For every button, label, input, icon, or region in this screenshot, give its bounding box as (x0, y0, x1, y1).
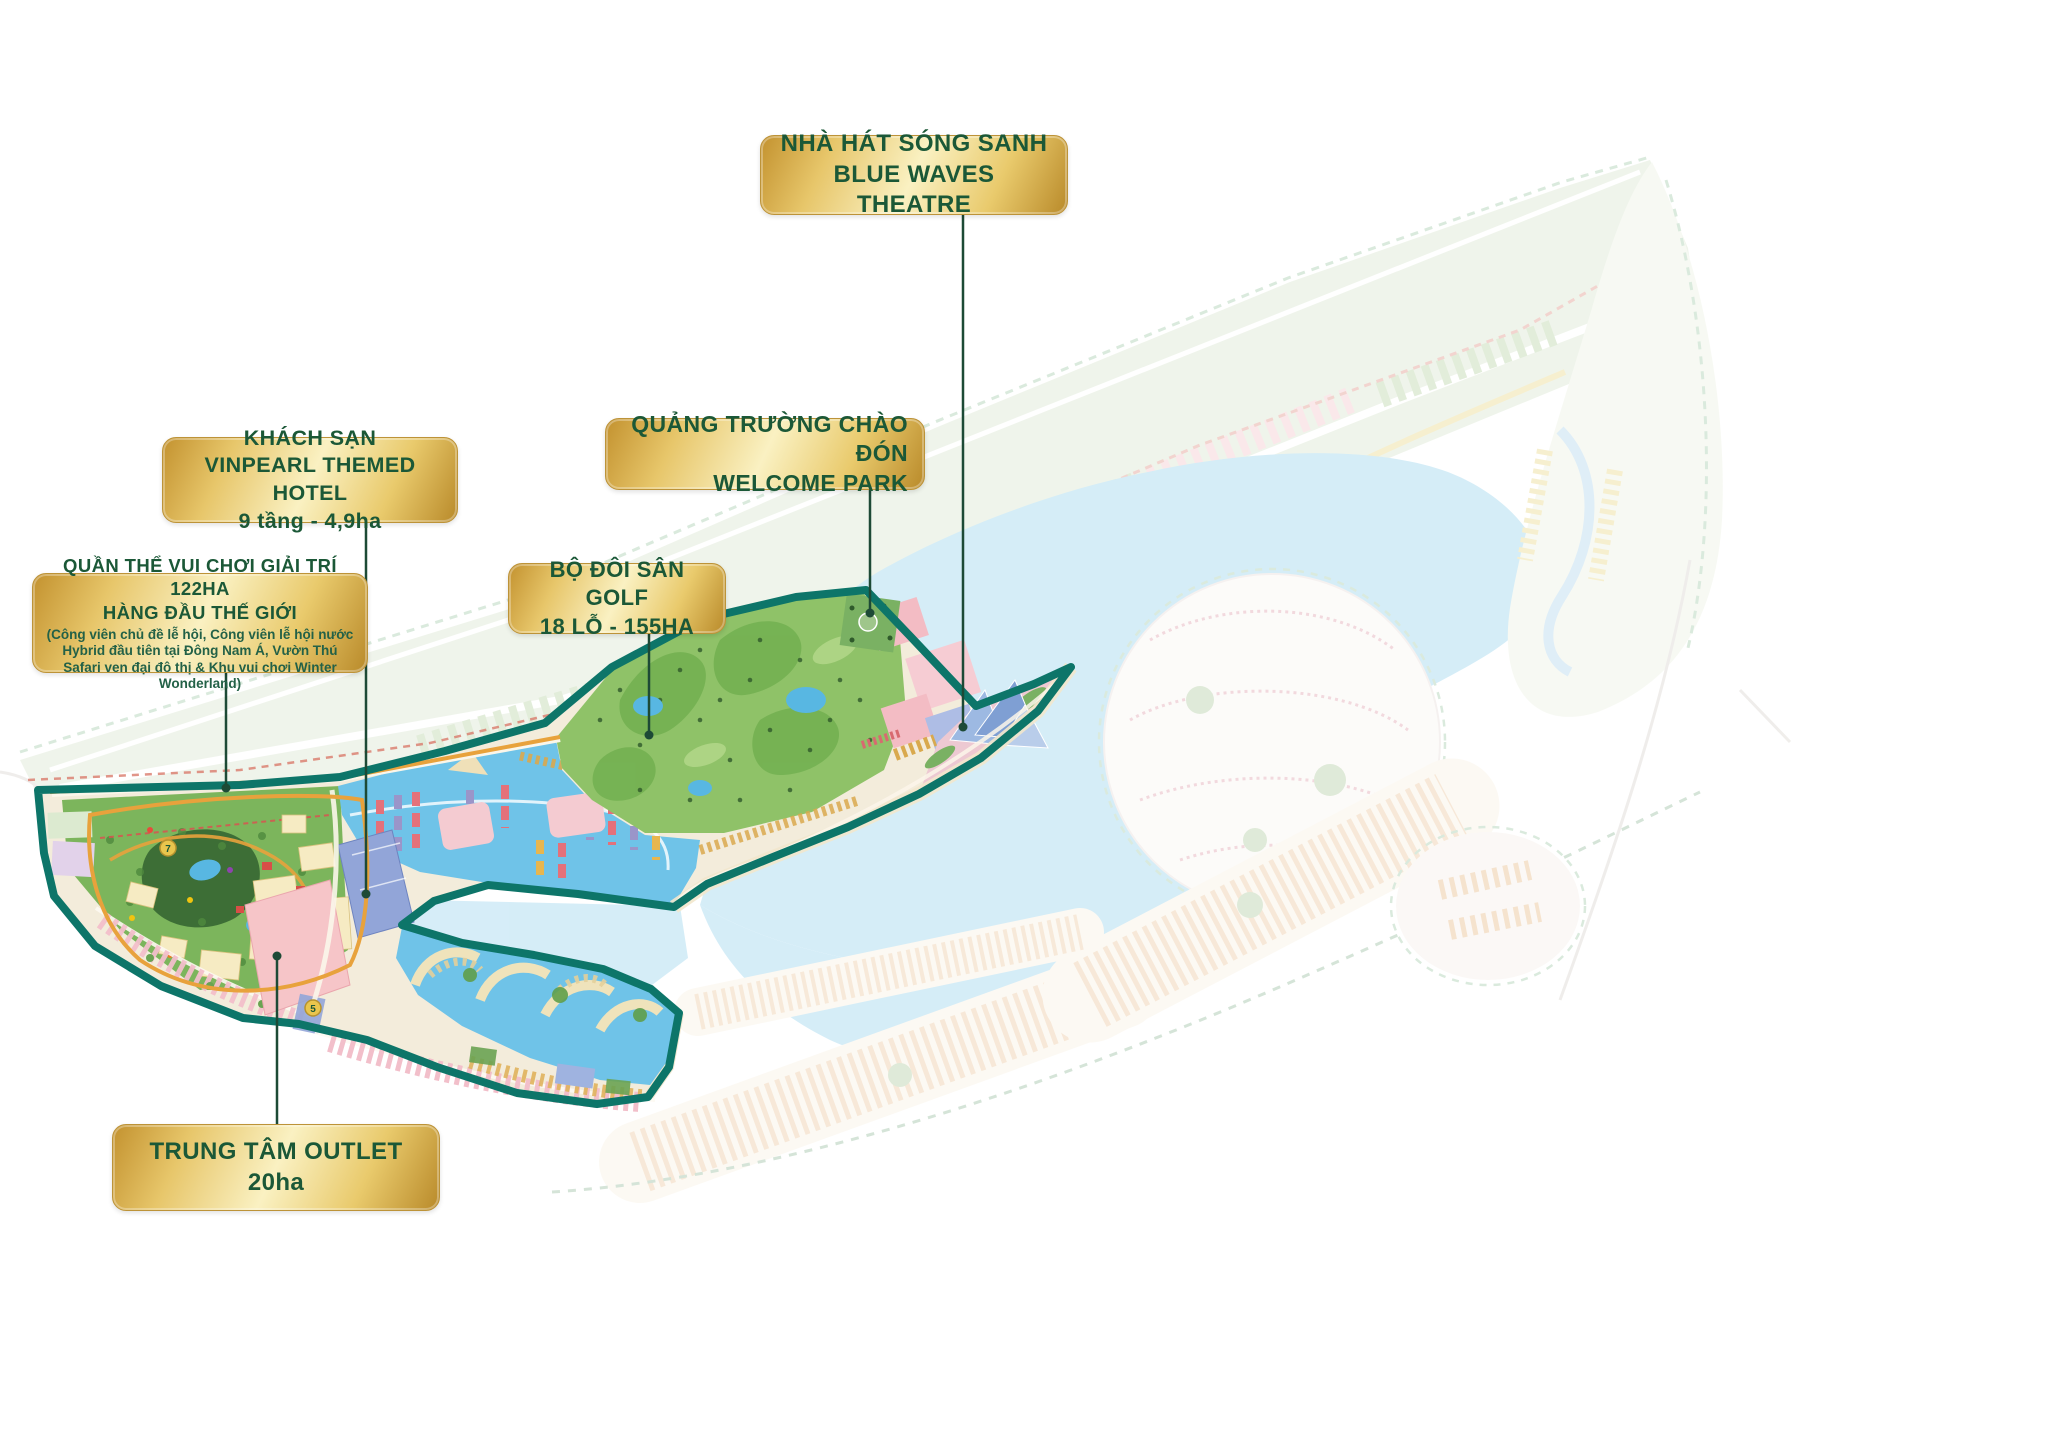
label-outlet-center: TRUNG TÂM OUTLET 20ha (112, 1124, 440, 1211)
connector-golf-dot (645, 731, 654, 740)
label-golf-line2: 18 LỖ - 155HA (521, 613, 713, 641)
label-welcome-line1: QUẢNG TRƯỜNG CHÀO ĐÓN (618, 410, 908, 469)
masterplan-page: 7 5 NHÀ HÁT SÓNG SANH BLUE WAVES THEATRE… (0, 0, 2048, 1449)
label-outlet-line2: 20ha (125, 1168, 427, 1199)
label-entertainment-complex: QUẦN THỂ VUI CHƠI GIẢI TRÍ 122HA HÀNG ĐẦ… (32, 573, 368, 673)
label-theatre-line2: BLUE WAVES THEATRE (773, 160, 1055, 221)
label-entertainment-line2: HÀNG ĐẦU THẾ GIỚI (45, 601, 355, 625)
route-marker-5: 5 (305, 1000, 321, 1016)
label-entertainment-line1: QUẦN THỂ VUI CHƠI GIẢI TRÍ 122HA (45, 554, 355, 601)
label-hotel-line3: 9 tầng - 4,9ha (175, 508, 445, 536)
connector-entertainment-dot (222, 784, 231, 793)
connector-hotel-dot (362, 890, 371, 899)
entry-green-block (48, 811, 93, 839)
label-vinpearl-hotel: KHÁCH SẠN VINPEARL THEMED HOTEL 9 tầng -… (162, 437, 458, 523)
route-marker-5-label: 5 (310, 1004, 316, 1015)
connector-welcome-dot (866, 609, 875, 618)
route-marker-7: 7 (160, 840, 176, 856)
label-theatre-line1: NHÀ HÁT SÓNG SANH (773, 129, 1055, 160)
route-marker-7-label: 7 (165, 844, 171, 855)
connector-outlet-dot (273, 952, 282, 961)
label-golf-course: BỘ ĐÔI SÂN GOLF 18 LỖ - 155HA (508, 563, 726, 634)
label-golf-line1: BỘ ĐÔI SÂN GOLF (521, 556, 713, 612)
label-entertainment-note: (Công viên chủ đề lễ hội, Công viên lễ h… (45, 627, 355, 693)
label-outlet-line1: TRUNG TÂM OUTLET (125, 1137, 427, 1168)
label-hotel-line1: KHÁCH SẠN (175, 425, 445, 453)
label-welcome-park: QUẢNG TRƯỜNG CHÀO ĐÓN WELCOME PARK (605, 418, 925, 490)
connector-theatre-dot (959, 723, 968, 732)
label-blue-waves-theatre: NHÀ HÁT SÓNG SANH BLUE WAVES THEATRE (760, 135, 1068, 215)
label-hotel-line2: VINPEARL THEMED HOTEL (175, 452, 445, 507)
label-welcome-line2: WELCOME PARK (618, 469, 908, 498)
